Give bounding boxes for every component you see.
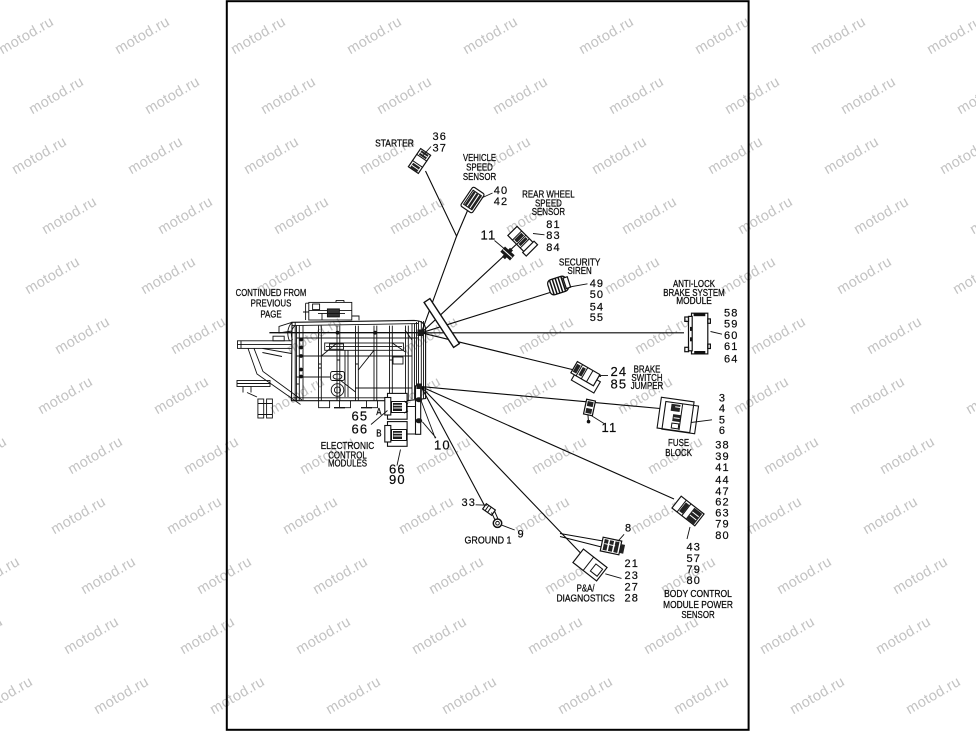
svg-text:79: 79 [715, 519, 729, 531]
svg-text:50: 50 [590, 289, 604, 301]
svg-text:55: 55 [590, 312, 604, 324]
svg-text:84: 84 [546, 242, 560, 254]
svg-text:CONTINUED FROM: CONTINUED FROM [236, 288, 307, 299]
svg-text:60: 60 [724, 330, 738, 342]
svg-text:11: 11 [602, 420, 618, 435]
svg-text:SENSOR: SENSOR [532, 207, 565, 218]
svg-text:33: 33 [462, 497, 476, 509]
svg-text:38: 38 [715, 440, 729, 452]
svg-text:DIAGNOSTICS: DIAGNOSTICS [556, 594, 615, 605]
svg-text:BODY CONTROL: BODY CONTROL [664, 589, 732, 600]
svg-text:66: 66 [352, 422, 369, 437]
svg-text:PREVIOUS: PREVIOUS [251, 299, 292, 310]
svg-text:A: A [376, 407, 382, 418]
svg-text:44: 44 [715, 475, 729, 487]
svg-text:JUMPER: JUMPER [631, 381, 664, 392]
svg-text:83: 83 [546, 230, 560, 242]
svg-text:11: 11 [481, 228, 497, 243]
svg-text:MODULES: MODULES [328, 459, 367, 470]
svg-text:61: 61 [724, 341, 738, 353]
svg-text:SIREN: SIREN [568, 266, 592, 277]
svg-text:85: 85 [611, 376, 628, 391]
svg-text:64: 64 [724, 354, 738, 366]
svg-text:80: 80 [687, 575, 701, 587]
svg-text:80: 80 [715, 530, 729, 542]
svg-text:PAGE: PAGE [260, 310, 282, 321]
svg-text:8: 8 [625, 522, 632, 534]
svg-text:4: 4 [719, 403, 726, 415]
svg-text:21: 21 [625, 558, 639, 570]
svg-text:STARTER: STARTER [375, 139, 414, 150]
svg-text:90: 90 [389, 472, 406, 487]
svg-text:6: 6 [719, 425, 726, 437]
svg-text:79: 79 [687, 564, 701, 576]
svg-text:36: 36 [433, 131, 447, 143]
svg-text:SENSOR: SENSOR [463, 172, 496, 183]
svg-text:28: 28 [625, 593, 639, 605]
svg-text:BLOCK: BLOCK [665, 448, 692, 459]
svg-text:41: 41 [715, 462, 729, 474]
svg-text:43: 43 [687, 541, 701, 553]
svg-text:SENSOR: SENSOR [681, 610, 714, 621]
svg-text:MODULE: MODULE [676, 296, 712, 307]
svg-text:9: 9 [518, 529, 525, 541]
svg-text:10: 10 [434, 438, 451, 453]
svg-text:37: 37 [433, 143, 447, 155]
svg-text:42: 42 [494, 196, 508, 208]
svg-text:23: 23 [625, 570, 639, 582]
svg-text:B: B [376, 428, 382, 439]
svg-text:GROUND 1: GROUND 1 [465, 536, 512, 547]
svg-text:59: 59 [724, 319, 738, 331]
